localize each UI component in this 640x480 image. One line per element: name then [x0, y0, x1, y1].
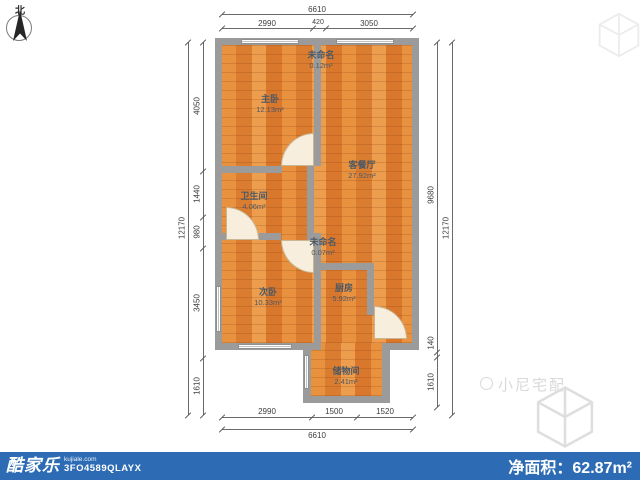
room-label-unnamed-middle: 未命名 0.07m² [309, 237, 336, 258]
footer-bar: 酷家乐 kujiale.com 3FO4589QLAYX 净面积：62.87m² [0, 452, 640, 480]
window-storage-left [304, 355, 309, 389]
dim-line-left-overall [188, 42, 189, 415]
dim-bottom-seg-2: 1500 [325, 407, 343, 416]
plan-code: 3FO4589QLAYX [64, 463, 141, 474]
dim-bottom-seg-1: 2990 [258, 407, 276, 416]
net-area: 净面积：62.87m² [508, 454, 640, 478]
room-label-storage: 储物间 2.41m² [332, 366, 359, 387]
dim-left-seg-4: 3450 [193, 294, 202, 312]
window-top-living [336, 39, 394, 44]
dim-right-overall: 12170 [442, 217, 451, 239]
dim-top-seg-2: 420 [312, 19, 324, 26]
watermark-cube-icon [533, 385, 597, 449]
window-top-master [241, 39, 299, 44]
wall-kitchen-right [367, 263, 374, 315]
footer-brand-block: 酷家乐 kujiale.com 3FO4589QLAYX [0, 453, 141, 479]
room-label-kitchen: 厨房 5.92m² [332, 283, 355, 304]
room-label-master-bedroom: 主卧 12.13m² [256, 94, 284, 115]
room-label-living-dining: 客餐厅 27.92m² [348, 160, 376, 181]
floorplan-page: 北 [0, 0, 640, 480]
room-label-second-bedroom: 次卧 10.33m² [254, 287, 282, 308]
dim-right-seg-1: 9680 [427, 186, 436, 204]
dim-left-seg-5: 1610 [193, 377, 202, 395]
dim-line-top-overall [222, 14, 413, 15]
net-area-value: 62.87m² [572, 460, 632, 477]
dim-tick [410, 426, 416, 432]
dim-top-seg-3: 3050 [360, 19, 378, 28]
wall-storage-bottom [303, 396, 390, 403]
kujiale-logo: 酷家乐 [6, 453, 60, 479]
wall-bath-bottom-b [259, 233, 281, 240]
dim-line-bottom-chain [222, 417, 413, 418]
dim-line-top-chain [222, 28, 413, 29]
wall-master-bottom [222, 166, 282, 173]
wall-kitchen-top [314, 263, 374, 270]
kujiale-domain: kujiale.com [64, 456, 141, 463]
dim-left-overall: 12170 [178, 217, 187, 239]
dim-tick [185, 412, 191, 418]
dim-tick [434, 404, 440, 410]
dim-tick [200, 412, 206, 418]
dim-left-seg-2: 1440 [193, 185, 202, 203]
wall-bath-right [307, 166, 314, 240]
room-label-unnamed-top: 未命名 0.12m² [307, 50, 334, 71]
dim-tick [410, 25, 416, 31]
window-bottom-secondbed [238, 344, 292, 349]
dim-top-overall: 6610 [308, 5, 326, 14]
dim-right-seg-3: 1610 [427, 373, 436, 391]
watermark-ring-icon [480, 377, 493, 390]
net-area-label: 净面积： [508, 460, 572, 477]
window-left-secondbed [216, 286, 221, 332]
dim-line-right-overall [452, 42, 453, 415]
room-label-bathroom: 卫生间 4.06m² [240, 191, 267, 212]
dim-bottom-seg-3: 1520 [376, 407, 394, 416]
dim-tick [410, 11, 416, 17]
dim-left-seg-3: 980 [193, 225, 202, 238]
dim-right-seg-2: 140 [427, 336, 436, 349]
dim-tick [449, 412, 455, 418]
wall-bottom-right [382, 343, 419, 350]
dim-top-seg-1: 2990 [258, 19, 276, 28]
dim-left-seg-1: 4050 [193, 97, 202, 115]
compass: 北 [3, 2, 37, 46]
dim-bottom-overall: 6610 [308, 431, 326, 440]
wall-right [412, 45, 419, 350]
dim-line-bottom-overall [222, 429, 413, 430]
watermark-cube-small-icon [596, 12, 640, 58]
dim-tick [410, 414, 416, 420]
